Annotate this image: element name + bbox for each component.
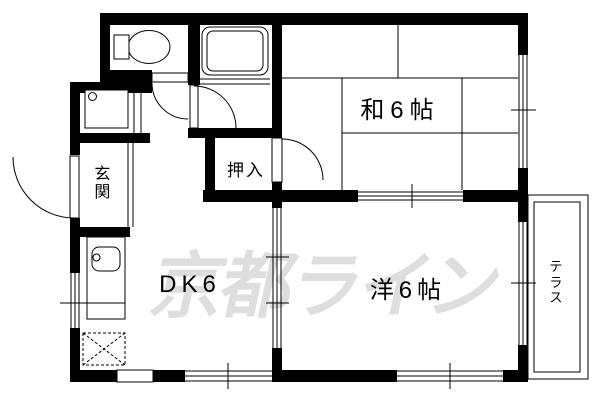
front-door <box>70 156 79 218</box>
front-door-arc <box>13 157 74 218</box>
label-western-room: 洋6帖 <box>358 270 458 305</box>
washroom-door <box>190 85 198 128</box>
small-window <box>117 370 153 382</box>
windows <box>60 55 536 389</box>
closet-door-arc <box>282 139 323 180</box>
kitchen-sink-icon <box>87 237 125 319</box>
label-entrance: 玄関 <box>94 166 111 202</box>
toilet-icon <box>114 31 170 64</box>
label-terrace: テラス <box>549 259 563 306</box>
refrigerator-dashed-box <box>83 333 125 365</box>
toilet-door-arc <box>152 83 188 119</box>
toilet-door <box>152 73 188 82</box>
floorplan-canvas: 京都ライン <box>0 0 600 400</box>
closet-door <box>272 138 282 182</box>
label-japanese-room: 和6帖 <box>350 90 450 125</box>
floorplan-drawing <box>0 0 600 400</box>
walls <box>70 13 528 382</box>
washroom-door-arc <box>194 86 236 128</box>
bathtub-icon <box>202 27 268 75</box>
label-closet: 押入 <box>224 156 268 181</box>
washbasin-icon <box>85 90 128 128</box>
label-dining-kitchen: DK6 <box>150 271 230 299</box>
